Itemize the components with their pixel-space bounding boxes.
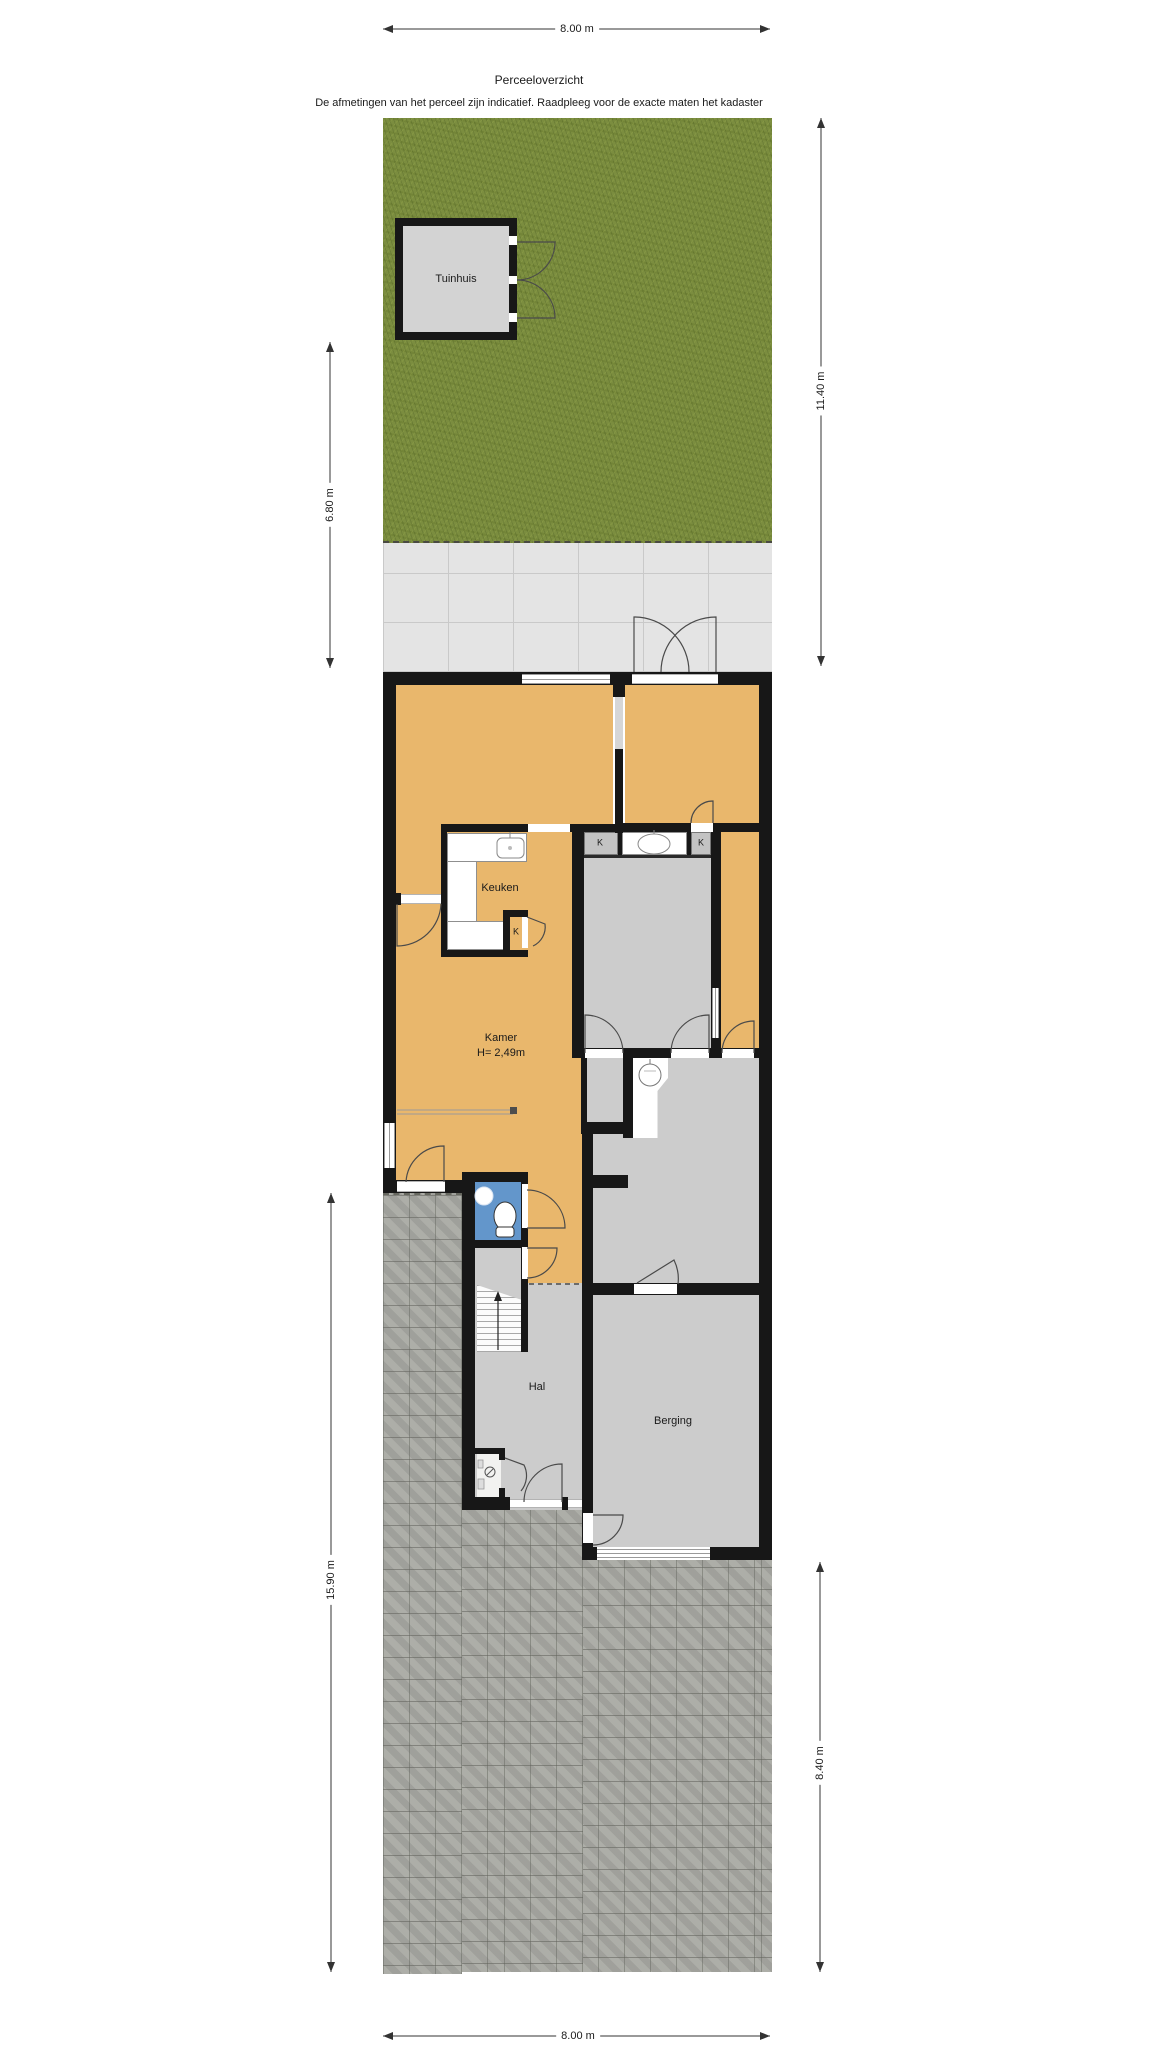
kitchen-counter-top (447, 833, 527, 862)
wall-stub-lower-room (593, 1175, 628, 1188)
paving-front-left (462, 1510, 583, 1972)
dimension-label-bottom: 8.00 m (556, 2030, 600, 2042)
dimension-label-lower-right: 8.40 m (814, 1741, 826, 1785)
room-label-berging: Berging (654, 1415, 692, 1427)
dimension-label-upper-left: 6.80 m (324, 483, 336, 527)
plan-title: Perceeloverzicht (495, 73, 584, 87)
backdoor-threshold (632, 674, 718, 684)
garage-door-threshold (597, 1549, 710, 1558)
frontdoor-sidelight (568, 1499, 582, 1508)
wall-meter-closet-right-top (499, 1448, 505, 1460)
closet-label-right: K (698, 839, 704, 848)
kitchen-closet-door-opening (522, 917, 528, 948)
wall-room-divider (615, 749, 623, 833)
room-label-hal: Hal (529, 1381, 546, 1393)
room-gray-upper (584, 832, 711, 1048)
toilet-door-opening (522, 1184, 528, 1228)
shed-door-jamb (509, 276, 517, 284)
wall-berging-bottom-left (583, 1547, 597, 1560)
interior-window (712, 988, 719, 1038)
kamer-floor-rightstrip (721, 832, 759, 1048)
divider-passage-gap (615, 697, 623, 749)
garden-patio-tiles (383, 543, 772, 673)
room-label-tuinhuis: Tuinhuis (435, 273, 476, 285)
plan-disclaimer: De afmetingen van het perceel zijn indic… (315, 97, 763, 109)
kamer-floor-topleft (396, 685, 613, 833)
washbasin-counter (622, 832, 687, 855)
toilet-floor (475, 1182, 521, 1240)
room-label-kamer: Kamer (485, 1032, 517, 1044)
window-back (522, 674, 610, 684)
shed-door-jamb (509, 236, 517, 245)
wall-divider-post (613, 685, 625, 697)
wall-kitchen-left (441, 826, 447, 957)
room-label-keuken: Keuken (481, 882, 518, 894)
wall-kitchen-closet-left (503, 910, 510, 957)
shed-door-jamb (509, 313, 517, 322)
closet-label-left: K (597, 839, 603, 848)
page-title: Perceeloverzicht (39, 71, 1039, 89)
room-label-kamer-height: H= 2,49m (477, 1047, 525, 1059)
wall-rear-left (462, 1180, 475, 1510)
dimension-label-upper-right: 11.40 m (815, 367, 827, 416)
wall-exterior-right (759, 672, 772, 1560)
floorplan-page: Perceeloverzicht De afmetingen van het p… (0, 0, 1152, 2048)
kitchen-counter-bottom (447, 921, 507, 950)
wall-grayroom-left (572, 827, 584, 1057)
grayroom-door-opening-right (671, 1049, 709, 1058)
wall-hal-berging (582, 1134, 593, 1560)
topright-door-opening (691, 823, 713, 832)
wall-berging-top (583, 1283, 772, 1295)
wall-exterior-left (383, 672, 396, 1193)
meter-closet (477, 1454, 501, 1497)
room-gray-lower (587, 1057, 759, 1283)
plan-disclaimer-row: De afmetingen van het perceel zijn indic… (39, 93, 1039, 111)
frontdoor-threshold (510, 1499, 562, 1508)
sidedoor-threshold (397, 1181, 445, 1192)
berging-door-opening (634, 1284, 677, 1294)
kamer-stub-door-opening (401, 894, 441, 904)
berging-sidedoor-opening (583, 1513, 593, 1543)
vestibule-door-opening (522, 1247, 528, 1279)
wall-nook-left (581, 1057, 587, 1127)
dimension-label-top: 8.00 m (555, 23, 599, 35)
window-left (384, 1123, 395, 1168)
closet-row-wall (584, 855, 721, 858)
wall-berging-bottom-right (710, 1547, 772, 1560)
wall-alcove-left (623, 1057, 633, 1138)
wall-kamer-stub-post (441, 893, 447, 905)
wall-kitchen-bottom (441, 950, 528, 957)
paving-side-path (383, 1193, 462, 1974)
wall-toilet-top (462, 1172, 528, 1182)
closet-label-kitchen: K (513, 928, 519, 937)
paving-front-right (583, 1560, 772, 1972)
grayroom-door-opening-left (585, 1049, 623, 1058)
wall-meter-closet-right-bottom (499, 1488, 505, 1499)
kitchen-counter-left (447, 861, 477, 922)
dimension-label-lower-left: 15.90 m (325, 1555, 337, 1605)
strip-door-opening (722, 1049, 754, 1058)
vestibule-floor (475, 1248, 522, 1285)
kamer-floor-topright (625, 685, 759, 823)
kitchen-passage-opening (528, 824, 570, 832)
